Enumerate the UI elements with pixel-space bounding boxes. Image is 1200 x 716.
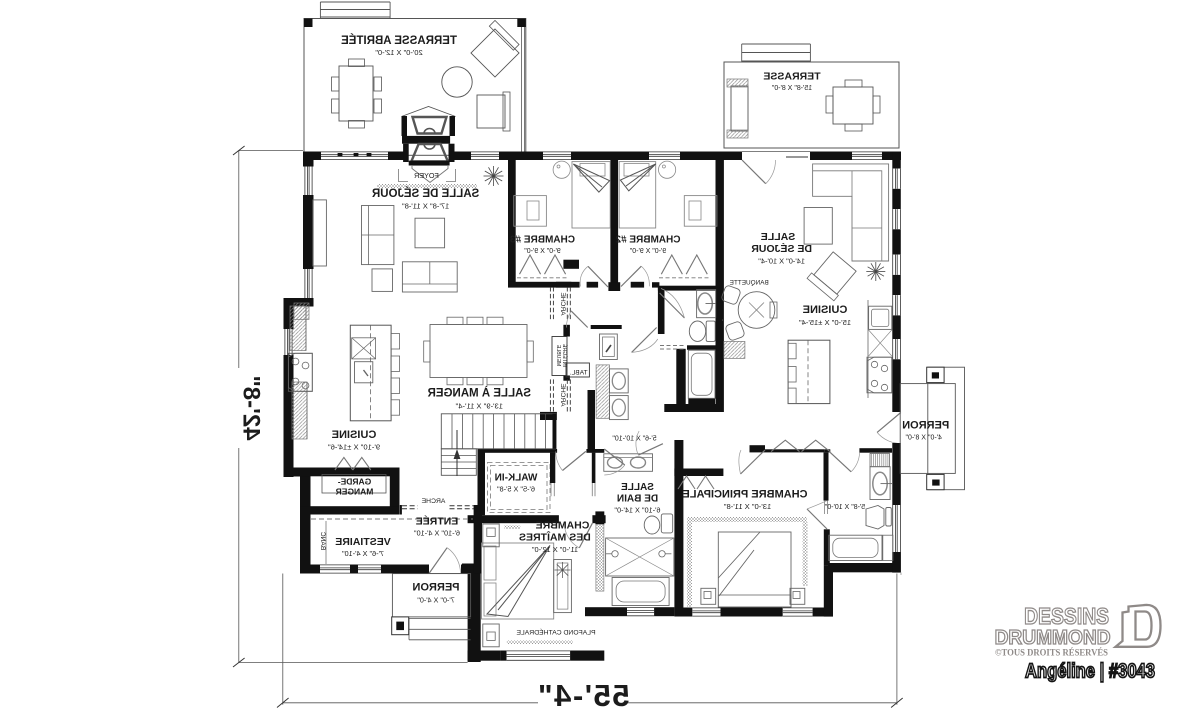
svg-text:DRUMMOND: DRUMMOND	[995, 627, 1111, 649]
svg-text:ARCHE: ARCHE	[559, 383, 566, 407]
svg-text:7'-6" X 4'-10": 7'-6" X 4'-10"	[342, 549, 384, 558]
svg-text:SALLE DE SÉJOUR: SALLE DE SÉJOUR	[371, 187, 479, 200]
svg-text:SALLE: SALLE	[621, 482, 654, 493]
svg-text:CHAMBRE #2: CHAMBRE #2	[615, 235, 680, 246]
svg-text:TERRASSE ABRITÉE: TERRASSE ABRITÉE	[341, 34, 457, 47]
svg-text:9'-0" X 9'-0": 9'-0" X 9'-0"	[524, 248, 561, 255]
svg-text:Angéline | #3043: Angéline | #3043	[1025, 661, 1155, 683]
svg-text:VESTIAIRE: VESTIAIRE	[335, 536, 390, 548]
svg-text:9'-0" X 9'-0": 9'-0" X 9'-0"	[629, 248, 666, 255]
svg-text:WALK-IN: WALK-IN	[495, 473, 538, 484]
svg-text:CHAMBRE PRINCIPALE: CHAMBRE PRINCIPALE	[682, 488, 807, 500]
svg-text:PERRON: PERRON	[902, 420, 949, 432]
svg-text:SALLE: SALLE	[761, 231, 795, 243]
svg-text:11'-0" X 12'-0": 11'-0" X 12'-0"	[532, 545, 579, 554]
svg-text:DE BAIN: DE BAIN	[617, 494, 658, 505]
svg-text:7'-0" X 4'-0": 7'-0" X 4'-0"	[417, 596, 455, 605]
svg-text:15'-0" X ±15'-4": 15'-0" X ±15'-4"	[799, 318, 851, 327]
svg-text:13'-9" X 11'-4": 13'-9" X 11'-4"	[455, 402, 503, 411]
svg-text:ENTRÉE: ENTRÉE	[416, 515, 459, 528]
svg-text:55'-4": 55'-4"	[536, 678, 629, 711]
svg-text:BANC: BANC	[319, 532, 326, 551]
svg-text:GARDE-: GARDE-	[338, 477, 372, 487]
svg-text:SALLE À MANGER: SALLE À MANGER	[427, 387, 531, 400]
svg-text:BANQUETTE: BANQUETTE	[730, 279, 769, 286]
svg-text:6'-10" X 14'-0": 6'-10" X 14'-0"	[614, 506, 661, 515]
svg-text:5'-8" X 10'-0": 5'-8" X 10'-0"	[824, 504, 865, 511]
svg-text:DE SÉJOUR: DE SÉJOUR	[751, 242, 812, 255]
svg-text:15'-8" X 8'-0": 15'-8" X 8'-0"	[771, 85, 812, 92]
svg-text:MANGER: MANGER	[336, 487, 374, 497]
svg-text:14'-0" X 10'-4": 14'-0" X 10'-4"	[758, 257, 805, 266]
svg-text:6'-10" X 4'-10": 6'-10" X 4'-10"	[414, 529, 461, 538]
svg-text:ARCHE: ARCHE	[421, 498, 445, 505]
svg-text:5'-6" X 10'-10": 5'-6" X 10'-10"	[612, 436, 657, 443]
svg-text:9'-10" X ±14'-6": 9'-10" X ±14'-6"	[328, 443, 380, 452]
svg-text:CHAMBRE: CHAMBRE	[536, 519, 590, 531]
svg-text:INTÉGRÉ: INTÉGRÉ	[561, 343, 568, 367]
svg-text:DESSINS: DESSINS	[1024, 603, 1109, 629]
svg-text:©TOUS DROITS RÉSERVÉS: ©TOUS DROITS RÉSERVÉS	[995, 647, 1108, 659]
svg-text:FOYER: FOYER	[414, 171, 439, 180]
svg-text:DES MAÎTRES: DES MAÎTRES	[519, 531, 591, 544]
svg-text:6'-5" X 5'-8": 6'-5" X 5'-8"	[497, 485, 535, 494]
svg-text:17'-8" X 11'-8": 17'-8" X 11'-8"	[402, 202, 450, 211]
svg-text:ARCHE: ARCHE	[559, 292, 566, 316]
svg-text:CUISINE: CUISINE	[332, 429, 377, 441]
svg-text:PLAFOND CATHÉDRALE: PLAFOND CATHÉDRALE	[516, 628, 596, 637]
svg-text:TABL.: TABL.	[570, 370, 588, 377]
svg-text:PERRON: PERRON	[412, 582, 459, 594]
svg-text:CUISINE: CUISINE	[803, 304, 848, 316]
svg-text:CHAMBRE #3: CHAMBRE #3	[510, 235, 575, 246]
svg-text:13'-0" X 11'-8": 13'-0" X 11'-8"	[723, 502, 771, 511]
svg-text:TERRASSE: TERRASSE	[763, 71, 820, 83]
svg-text:42'-8": 42'-8"	[238, 375, 265, 440]
svg-text:MEUBLE: MEUBLE	[555, 344, 561, 366]
svg-text:4'-0" X 8'-0": 4'-0" X 8'-0"	[905, 435, 942, 442]
svg-text:20'-0" X 12'-0": 20'-0" X 12'-0"	[375, 48, 423, 57]
